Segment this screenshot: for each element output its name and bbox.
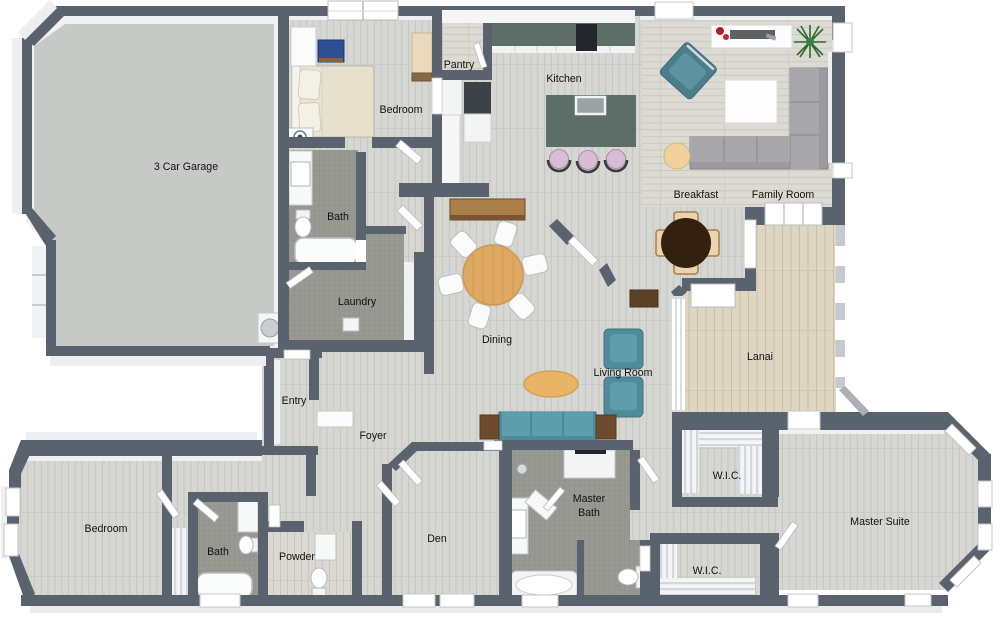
svg-text:W.I.C.: W.I.C.	[713, 470, 742, 482]
svg-text:Living Room: Living Room	[594, 367, 653, 379]
svg-text:Bath: Bath	[327, 211, 349, 223]
svg-text:Powder: Powder	[279, 551, 315, 563]
svg-text:Foyer: Foyer	[359, 430, 387, 442]
svg-text:Breakfast: Breakfast	[674, 189, 719, 201]
svg-text:Bedroom: Bedroom	[85, 523, 128, 535]
svg-text:Master: Master	[573, 493, 606, 505]
svg-text:Dining: Dining	[482, 334, 512, 346]
svg-text:Den: Den	[427, 533, 447, 545]
svg-text:Bath: Bath	[207, 546, 229, 558]
svg-text:Master Suite: Master Suite	[850, 516, 910, 528]
svg-text:Pantry: Pantry	[444, 59, 475, 71]
svg-text:Bath: Bath	[578, 507, 600, 519]
svg-text:Kitchen: Kitchen	[546, 73, 581, 85]
svg-text:Bedroom: Bedroom	[380, 104, 423, 116]
svg-text:Lanai: Lanai	[747, 351, 773, 363]
svg-text:Entry: Entry	[282, 395, 307, 407]
svg-text:3 Car Garage: 3 Car Garage	[154, 161, 218, 173]
svg-text:Laundry: Laundry	[338, 296, 377, 308]
svg-text:Family Room: Family Room	[752, 189, 815, 201]
svg-text:W.I.C.: W.I.C.	[693, 565, 722, 577]
